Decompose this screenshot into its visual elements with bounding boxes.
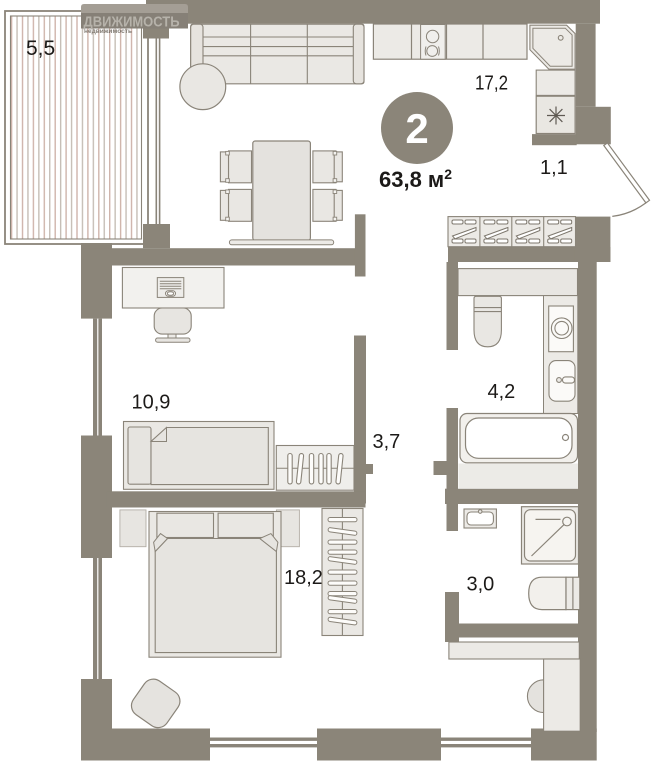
svg-text:18,2: 18,2 [284,567,323,589]
svg-text:63,8 м2: 63,8 м2 [379,166,452,192]
svg-text:3,7: 3,7 [373,431,401,453]
svg-text:10,9: 10,9 [132,392,171,414]
svg-text:4,2: 4,2 [488,381,516,403]
svg-text:17,2: 17,2 [475,73,508,95]
svg-text:2: 2 [405,105,428,152]
svg-text:1,1: 1,1 [540,157,568,179]
svg-text:недвижимость: недвижимость [84,29,132,35]
svg-text:3,0: 3,0 [467,574,495,596]
svg-text:5,5: 5,5 [26,37,55,60]
